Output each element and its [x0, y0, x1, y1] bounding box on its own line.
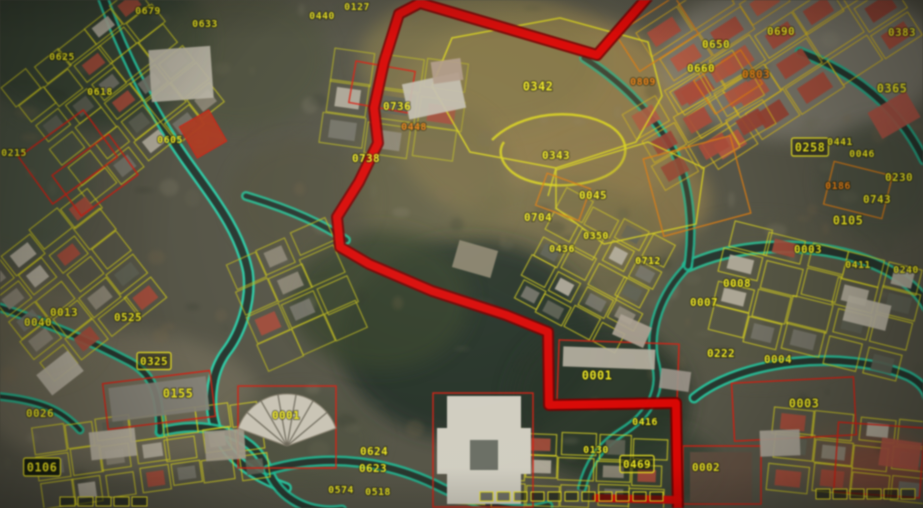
parcel-label-0448[interactable]: 0448 [401, 122, 427, 133]
parcel-label-0518[interactable]: 0518 [365, 487, 391, 498]
parcel-label-0343[interactable]: 0343 [542, 149, 570, 162]
parcel-label-0045[interactable]: 0045 [579, 189, 607, 202]
parcel-label-0215[interactable]: 0215 [1, 148, 27, 159]
parcel-label-0003[interactable]: 0003 [794, 243, 822, 256]
parcel-label-0186[interactable]: 0186 [825, 181, 851, 192]
map-svg: 0679012704400633065006900383066008090803… [0, 0, 923, 508]
parcel-label-0003[interactable]: 0003 [789, 397, 820, 411]
parcel-label-0809[interactable]: 0809 [630, 77, 656, 88]
parcel-label-0258[interactable]: 0258 [795, 141, 826, 155]
parcel-label-0127[interactable]: 0127 [344, 2, 370, 13]
parcel-label-0436[interactable]: 0436 [549, 244, 575, 255]
parcel-label-0416[interactable]: 0416 [632, 417, 658, 428]
parcel-label-0624[interactable]: 0624 [360, 445, 388, 458]
satellite-map-view[interactable]: 0679012704400633065006900383066008090803… [0, 0, 923, 508]
parcel-label-0679[interactable]: 0679 [135, 6, 161, 17]
parcel-label-0743[interactable]: 0743 [863, 193, 891, 206]
parcel-label-0618[interactable]: 0618 [87, 87, 113, 98]
parcel-label-0008[interactable]: 0008 [723, 277, 751, 290]
parcel-label-0650[interactable]: 0650 [702, 38, 730, 51]
parcel-label-0004[interactable]: 0004 [764, 353, 792, 366]
parcel-label-0738[interactable]: 0738 [352, 152, 380, 165]
parcel-label-0222[interactable]: 0222 [707, 347, 735, 360]
parcel-label-0441[interactable]: 0441 [827, 137, 853, 148]
parcel-label-0325[interactable]: 0325 [140, 355, 168, 368]
parcel-label-0105[interactable]: 0105 [833, 214, 864, 228]
parcel-label-0633[interactable]: 0633 [192, 19, 218, 30]
parcel-label-0803[interactable]: 0803 [742, 68, 770, 81]
parcel-label-0736[interactable]: 0736 [383, 100, 411, 113]
parcel-label-0525[interactable]: 0525 [114, 311, 142, 324]
parcel-label-0469[interactable]: 0469 [623, 458, 651, 471]
parcel-label-0230[interactable]: 0230 [885, 171, 913, 184]
parcel-label-0660[interactable]: 0660 [687, 62, 715, 75]
parcel-label-0040[interactable]: 0040 [24, 316, 52, 329]
parcel-label-0605[interactable]: 0605 [157, 135, 183, 146]
parcel-label-0155[interactable]: 0155 [163, 387, 194, 401]
parcel-label-0440[interactable]: 0440 [309, 11, 335, 22]
parcel-label-0690[interactable]: 0690 [767, 25, 795, 38]
parcel-label-0574[interactable]: 0574 [328, 485, 354, 496]
parcel-label-0007[interactable]: 0007 [690, 296, 718, 309]
parcel-label-0240[interactable]: 0240 [893, 265, 919, 276]
parcel-label-0712[interactable]: 0712 [635, 256, 661, 267]
parcel-label-0623[interactable]: 0623 [359, 462, 387, 475]
parcel-label-0001[interactable]: 0001 [272, 409, 300, 422]
parcel-label-0625[interactable]: 0625 [49, 52, 75, 63]
parcel-label-0342[interactable]: 0342 [523, 80, 554, 94]
parcel-label-0383[interactable]: 0383 [888, 26, 916, 39]
parcel-label-0411[interactable]: 0411 [845, 260, 871, 271]
parcel-label-0001[interactable]: 0001 [582, 369, 613, 383]
parcel-label-0013[interactable]: 0013 [50, 306, 78, 319]
parcel-label-0046[interactable]: 0046 [849, 149, 875, 160]
parcel-label-0130[interactable]: 0130 [583, 445, 609, 456]
parcel-label-0002[interactable]: 0002 [692, 461, 720, 474]
parcel-label-0026[interactable]: 0026 [26, 407, 54, 420]
parcel-label-0365[interactable]: 0365 [877, 82, 908, 96]
parcel-label-0704[interactable]: 0704 [524, 211, 552, 224]
parcel-label-0106[interactable]: 0106 [27, 461, 58, 475]
parcel-label-0350[interactable]: 0350 [583, 231, 609, 242]
map-render-area: 0679012704400633065006900383066008090803… [0, 0, 923, 508]
